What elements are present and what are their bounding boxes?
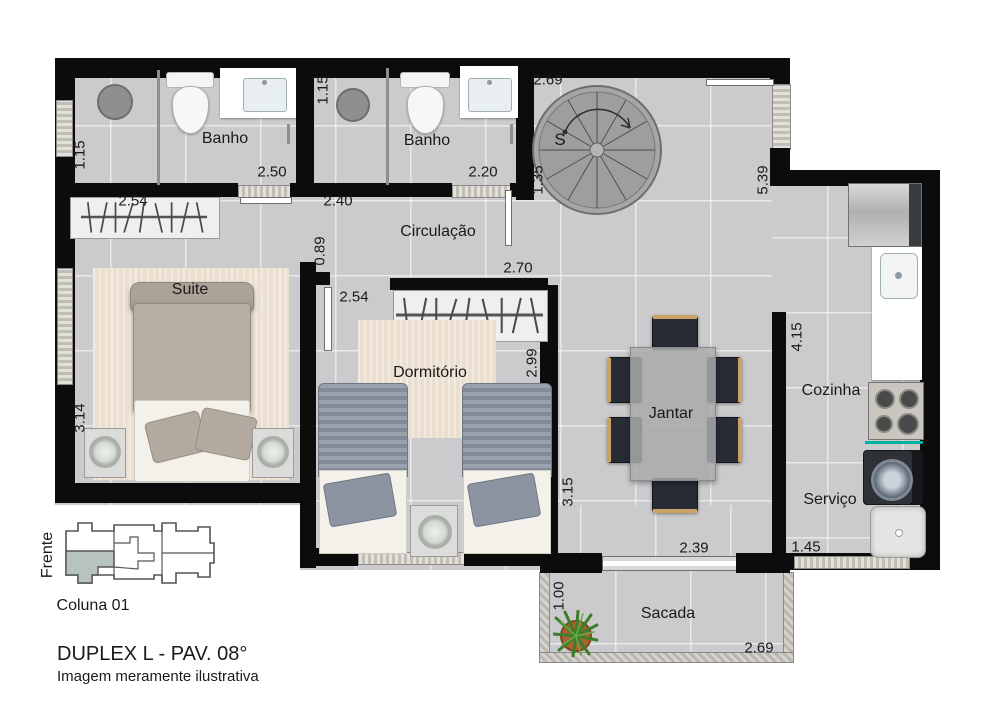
dim-banho1-width: 2.50: [257, 164, 286, 181]
stove-burner-2: [899, 389, 919, 409]
stove-burner-3: [875, 415, 893, 433]
dorm-nightstand: [410, 505, 458, 557]
stove-burner-1: [875, 389, 895, 409]
stove-burner-4: [897, 413, 919, 435]
suite-nightstand-right: [252, 428, 294, 478]
threshold-entry-door: [772, 84, 791, 150]
wall-banho1-bottom: [65, 183, 238, 197]
fridge: [848, 183, 922, 247]
dim-dorm-closet-offset: 2.54: [339, 289, 368, 306]
dim-suite-closet-width: 2.54: [118, 193, 147, 210]
wall-dorm-left-stub: [300, 272, 330, 285]
keyplan-front-label: Frente: [39, 532, 57, 578]
dim-jantar-width: 2.39: [679, 540, 708, 557]
keyplan: [58, 512, 218, 592]
dim-living-depth: 5.39: [755, 165, 772, 194]
dim-banho2-width: 2.20: [468, 164, 497, 181]
threshold-banho2-door: [452, 185, 512, 198]
dorm-clock: [418, 515, 452, 549]
sacada-parapet-left: [539, 572, 550, 660]
room-label-banho1: Banho: [202, 130, 248, 148]
room-label-banho2: Banho: [404, 132, 450, 150]
dim-banho2-depth: 1.15: [315, 75, 332, 104]
dorm-bed-left-mattress: [318, 383, 408, 477]
door-leaf-banho2: [505, 190, 512, 246]
dim-sacada-width: 2.69: [744, 640, 773, 657]
dim-servico-width: 1.45: [791, 539, 820, 556]
dim-suite-depth: 3.14: [72, 403, 89, 432]
dim-cozinha-depth: 4.15: [789, 322, 806, 351]
room-label-servico: Serviço: [803, 491, 856, 509]
sacada-parapet-right: [783, 572, 794, 660]
laundry-tank: [870, 506, 926, 558]
dim-dorm-depth: 2.99: [524, 348, 541, 377]
dim-dorm-closet-width: 2.70: [503, 260, 532, 277]
banho1-register-valve: [287, 124, 290, 144]
jantar-chair-top: [652, 315, 698, 350]
spiral-stairs: [531, 82, 665, 220]
jantar-chair-bottom: [652, 478, 698, 513]
banho2-faucet: [487, 80, 492, 85]
suite-clock-right: [257, 436, 289, 468]
banho2-register-valve: [510, 124, 513, 144]
wall-dorm-left: [300, 262, 316, 568]
banho1-faucet: [262, 80, 267, 85]
plan-disclaimer: Imagem meramente ilustrativa: [57, 668, 259, 685]
banho1-shower-partition: [157, 70, 160, 185]
sliding-door-sacada: [602, 556, 738, 571]
dim-sacada-depth: 1.00: [551, 581, 568, 610]
room-label-circulacao: Circulação: [400, 223, 476, 241]
wall-dorm-closet-top: [390, 278, 548, 290]
laundry-tank-drain: [895, 529, 903, 537]
stairs-direction-label: S: [554, 130, 565, 150]
banho2-shower-partition: [386, 68, 389, 185]
floorplan-page: { "plan": { "rooms": { "banho1": "Banho"…: [0, 0, 993, 720]
room-label-suite: Suite: [172, 281, 208, 299]
washer-drum: [871, 459, 913, 501]
suite-bed-duvet: [133, 303, 251, 413]
suite-nightstand-left: [84, 428, 126, 478]
door-leaf-dorm: [324, 287, 332, 351]
plan-title: DUPLEX L - PAV. 08°: [57, 643, 247, 666]
window-suite: [57, 268, 73, 385]
room-label-sacada: Sacada: [641, 605, 695, 623]
room-label-dormitorio: Dormitório: [393, 364, 467, 382]
banho2-shower-drain: [336, 88, 370, 122]
wall-banho-divider: [296, 58, 314, 197]
stove-accent-strip: [865, 441, 923, 444]
dim-stairs-width: 2.69: [533, 72, 562, 89]
dim-jantar-depth: 3.15: [560, 477, 577, 506]
stove: [868, 382, 924, 440]
dim-suite-door: 0.89: [312, 236, 329, 265]
wall-living-bottom-right: [736, 553, 790, 573]
door-leaf-entry: [706, 79, 774, 86]
window-banho1: [56, 100, 73, 157]
wall-suite-bottom: [55, 483, 307, 503]
room-label-cozinha: Cozinha: [802, 382, 861, 400]
wall-kitchen-living-divider: [772, 312, 786, 560]
suite-clock-left: [89, 436, 121, 468]
keyplan-column-label: Coluna 01: [57, 597, 130, 615]
keyplan-highlight-unit: [66, 551, 114, 583]
washing-machine: [863, 450, 923, 505]
dim-banho1-depth: 1.15: [72, 140, 89, 169]
dim-stairs-depth: 1.35: [530, 165, 547, 194]
plant: [553, 610, 599, 658]
dim-circulacao-width: 2.40: [323, 193, 352, 210]
banho1-shower-drain: [97, 84, 133, 120]
kitchen-sink-drain: [895, 272, 902, 279]
room-label-jantar: Jantar: [649, 405, 693, 423]
dorm-bed-right-mattress: [462, 383, 552, 477]
door-leaf-banho1: [240, 197, 292, 204]
